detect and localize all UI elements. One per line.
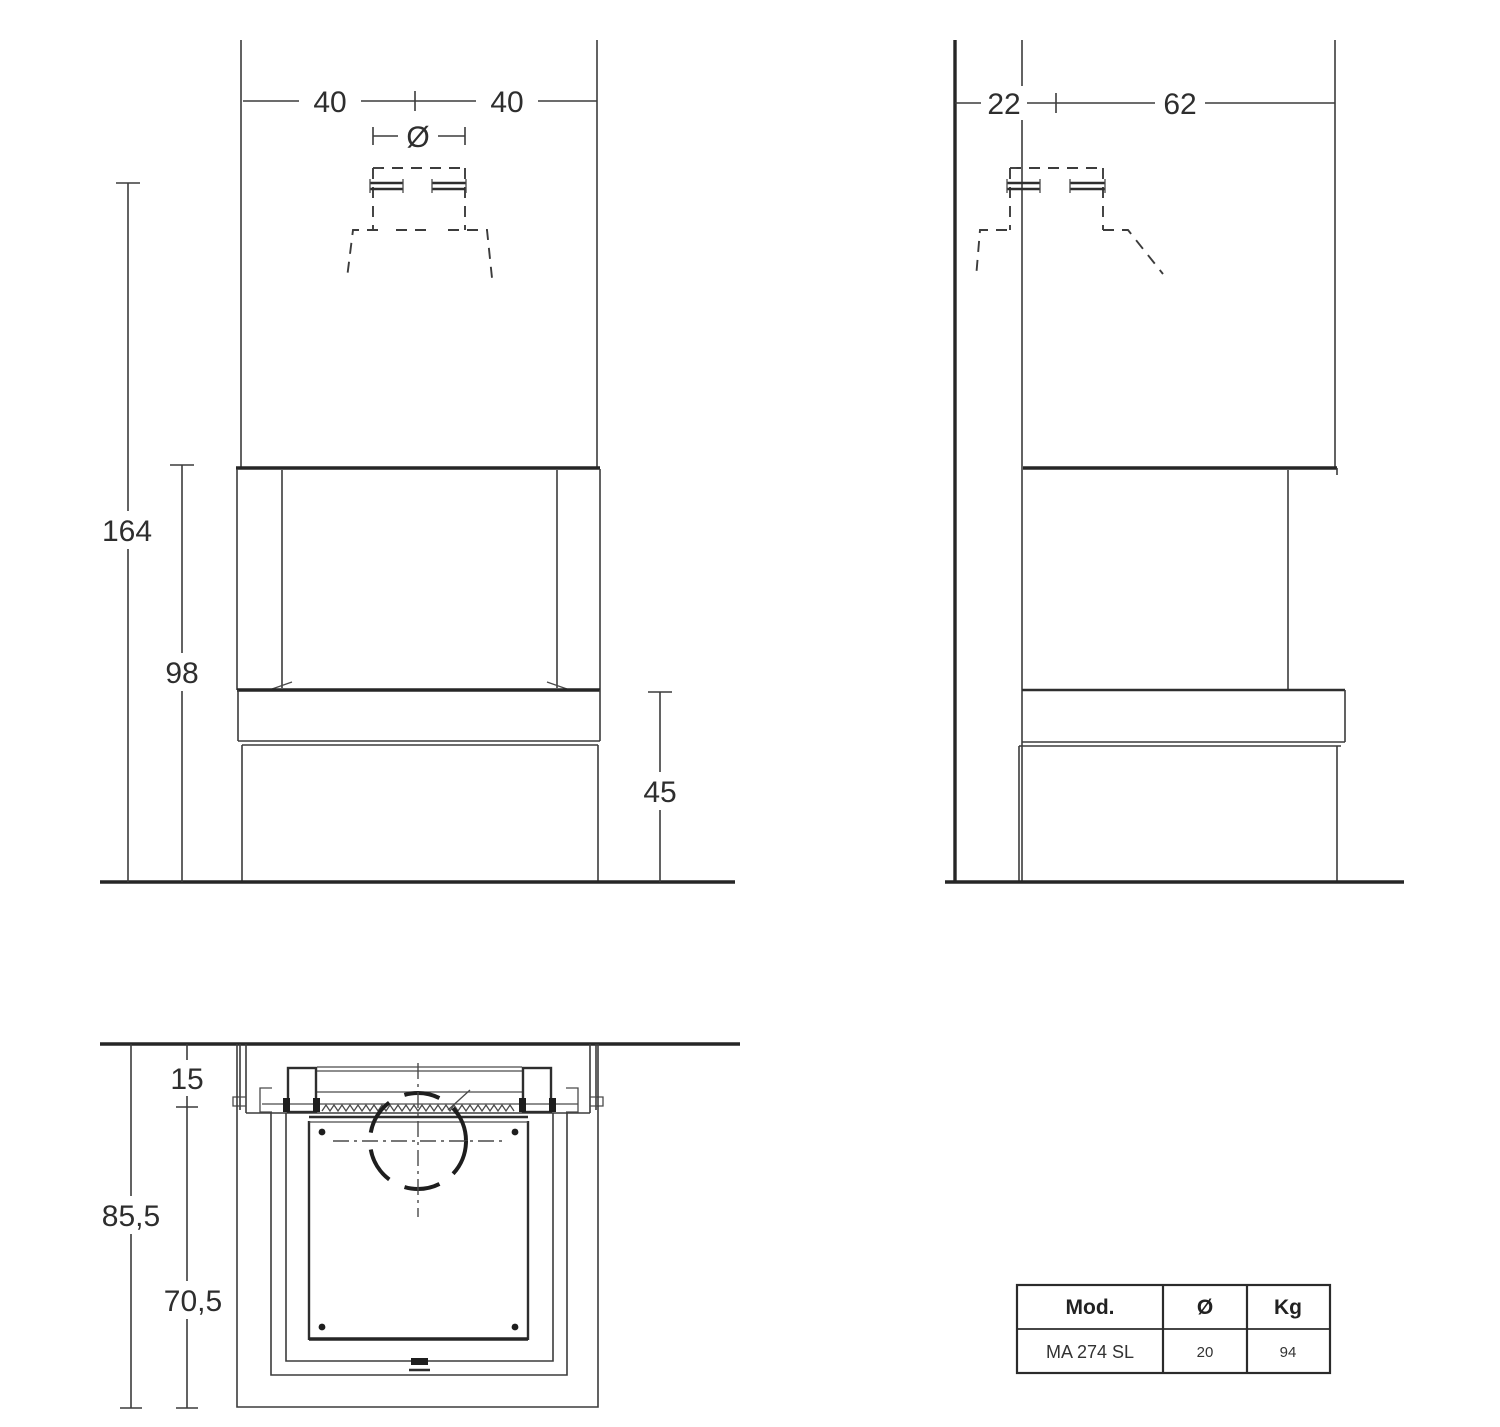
spec-table-cell-model: MA 274 SL [1046, 1342, 1134, 1362]
flue-side-dashed-lines [373, 168, 465, 230]
spec-table: Mod. Ø Kg MA 274 SL 20 94 [1017, 1285, 1330, 1373]
flue-collar-ticks [370, 179, 466, 193]
side-wall-depth-label: 22 [987, 88, 1020, 121]
side-bench-outline [1022, 690, 1345, 742]
spec-table-cell-diameter: 20 [1197, 1344, 1214, 1361]
plan-inner-shell-rect [286, 1113, 553, 1361]
plan-wall-inset-label: 15 [170, 1063, 203, 1096]
front-opening-columns [282, 470, 557, 688]
front-elevation-view: 40 40 Ø 164 [99, 40, 735, 882]
front-flue-pipe [347, 168, 492, 278]
front-flue-diameter-label: Ø [406, 121, 429, 154]
fireplace-technical-drawing: 40 40 Ø 164 [0, 0, 1500, 1427]
flue-flare-left [347, 230, 378, 278]
front-width-left-label: 40 [313, 86, 346, 119]
spec-table-header-model: Mod. [1066, 1296, 1115, 1319]
plan-mounting-brackets [260, 1068, 578, 1112]
plan-damper-lever-mark [448, 1090, 470, 1110]
plan-body-depth-label: 70,5 [164, 1285, 222, 1318]
side-flue-dashed-sides [1010, 168, 1103, 230]
plan-left-bracket [288, 1068, 316, 1112]
side-flue-flare-left [976, 230, 1007, 278]
front-total-height-label: 164 [102, 515, 152, 548]
plan-right-bracket [523, 1068, 551, 1112]
flue-collar-lines [370, 183, 466, 189]
plan-middle-shell-rect [271, 1113, 567, 1375]
side-flue-pipe [976, 168, 1163, 278]
side-elevation-view: 22 62 [945, 40, 1404, 882]
plan-right-bracket-tab-outer [549, 1098, 556, 1112]
plan-screw-bottom-left [319, 1324, 326, 1331]
spec-table-header-weight: Kg [1274, 1296, 1302, 1319]
front-width-right-label: 40 [490, 86, 523, 119]
plan-screw-top-right [512, 1129, 519, 1136]
side-flue-flare-right [1103, 230, 1163, 274]
plan-left-bracket-tab-inner [313, 1098, 320, 1112]
spec-table-cell-weight: 94 [1280, 1344, 1297, 1361]
front-base-height-label: 45 [643, 776, 676, 809]
plan-left-bracket-tab-outer [283, 1098, 290, 1112]
plan-screw-top-left [319, 1129, 326, 1136]
plan-right-bracket-tab-inner [519, 1098, 526, 1112]
plan-screw-bottom-right [512, 1324, 519, 1331]
plan-frame-top-lines [317, 1067, 522, 1092]
front-column-feet [272, 682, 567, 689]
flue-flare-right [448, 230, 492, 278]
technical-drawing-sheet: 40 40 Ø 164 [0, 0, 1500, 1427]
front-bench [238, 690, 600, 741]
plan-front-center-latch [411, 1358, 428, 1365]
plan-total-depth-label: 85,5 [102, 1200, 160, 1233]
plan-view: 15 70,5 85,5 [96, 1044, 740, 1408]
side-base-edges [1019, 746, 1337, 882]
spec-table-header-diameter: Ø [1197, 1296, 1213, 1319]
front-opening-height-label: 98 [165, 657, 198, 690]
side-body-depth-label: 62 [1163, 88, 1196, 121]
front-base-edges [242, 745, 598, 882]
